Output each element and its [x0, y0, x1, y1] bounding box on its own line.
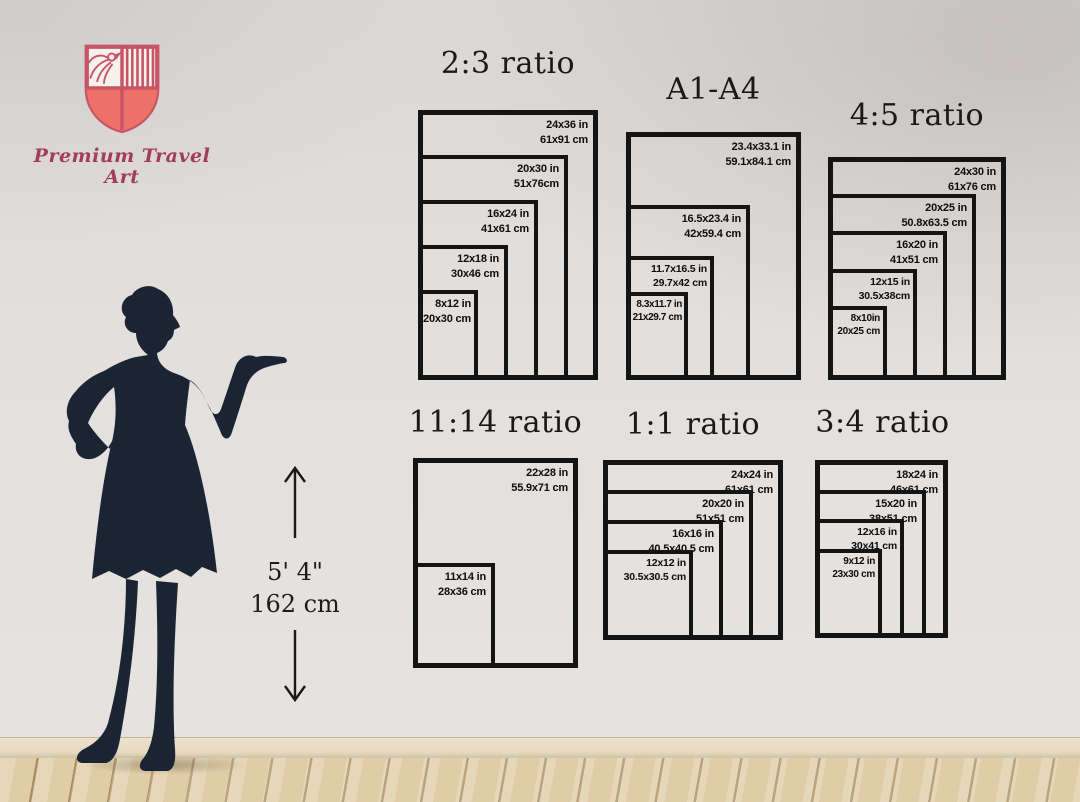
- size-label: 16x24 in41x61 cm: [481, 204, 534, 236]
- size-label: 12x12 in30.5x30.5 cm: [624, 554, 689, 585]
- size-label: 11x14 in28x36 cm: [438, 567, 491, 599]
- size-box-8x10: 8x10in20x25 cm: [828, 306, 887, 380]
- ratio-title-2-3: 2:3 ratio: [418, 48, 598, 80]
- size-label: 20x25 in50.8x63.5 cm: [902, 198, 973, 230]
- size-box-9x12: 9x12 in23x30 cm: [815, 549, 882, 638]
- size-label: 12x15 in30.5x38cm: [859, 273, 913, 304]
- height-down-arrow-icon: [265, 628, 325, 706]
- size-label: 24x30 in61x76 cm: [948, 162, 1001, 194]
- size-label: 9x12 in23x30 cm: [832, 553, 878, 581]
- size-label: 11.7x16.5 in29.7x42 cm: [651, 260, 710, 291]
- ratio-title-3-4: 3:4 ratio: [805, 407, 960, 439]
- size-label: 24x36 in61x91 cm: [540, 115, 593, 147]
- height-value-metric: 162 cm: [240, 590, 350, 619]
- size-label: 16.5x23.4 in42x59.4 cm: [682, 209, 746, 241]
- height-up-arrow-icon: [265, 462, 325, 540]
- woman-silhouette: [40, 283, 290, 775]
- size-label: 22x28 in55.9x71 cm: [511, 463, 573, 495]
- size-box-8x12: 8x12 in20x30 cm: [418, 290, 478, 380]
- brand-name: Premium Travel Art: [22, 146, 222, 188]
- size-label: 16x20 in41x51 cm: [890, 235, 943, 267]
- ratio-title-1-1: 1:1 ratio: [603, 409, 783, 441]
- brand-logo: Premium Travel Art: [22, 40, 222, 188]
- size-label: 12x18 in30x46 cm: [451, 249, 504, 281]
- size-label: 8x12 in20x30 cm: [423, 294, 474, 326]
- size-label: 20x30 in51x76cm: [514, 159, 564, 191]
- poster-size-guide: Premium Travel Art 5' 4" 162 cm 2:3 rati…: [0, 0, 1080, 802]
- ratio-title-11-14: 11:14 ratio: [403, 407, 588, 439]
- size-box-a4: 8.3x11.7 in21x29.7 cm: [626, 292, 688, 380]
- height-value-imperial: 5' 4": [240, 558, 350, 587]
- size-box-12x12: 12x12 in30.5x30.5 cm: [603, 550, 693, 640]
- size-box-11x14: 11x14 in28x36 cm: [413, 563, 495, 668]
- shield-logo-icon: [79, 40, 165, 136]
- ratio-title-4-5: 4:5 ratio: [828, 100, 1006, 132]
- size-label: 8.3x11.7 in21x29.7 cm: [633, 296, 684, 324]
- size-label: 8x10in20x25 cm: [837, 310, 883, 338]
- ratio-title-a1-a4: A1-A4: [626, 74, 801, 106]
- size-label: 23.4x33.1 in59.1x84.1 cm: [726, 137, 797, 169]
